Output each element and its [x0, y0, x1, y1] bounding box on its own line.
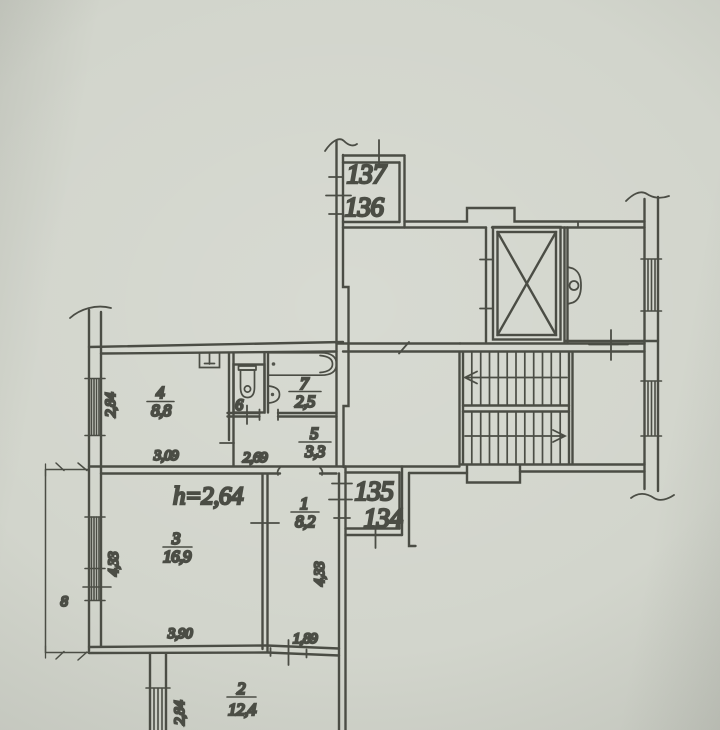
svg-text:3: 3: [171, 529, 180, 548]
svg-text:137: 137: [347, 159, 388, 189]
svg-text:136: 136: [345, 192, 385, 222]
svg-text:6: 6: [235, 397, 243, 414]
svg-text:2,5: 2,5: [295, 392, 315, 411]
svg-text:7: 7: [300, 374, 310, 393]
svg-text:4: 4: [156, 383, 165, 402]
svg-text:3,90: 3,90: [167, 626, 193, 642]
svg-text:3,09: 3,09: [153, 448, 179, 464]
svg-text:8: 8: [61, 594, 69, 610]
svg-text:h=2,64: h=2,64: [173, 483, 243, 510]
svg-text:2: 2: [237, 679, 246, 698]
svg-text:3,3: 3,3: [304, 442, 325, 461]
svg-text:16,9: 16,9: [163, 547, 192, 566]
svg-text:2,84: 2,84: [103, 392, 119, 417]
svg-text:5: 5: [310, 424, 318, 443]
svg-text:2,69: 2,69: [243, 450, 268, 466]
svg-text:2,84: 2,84: [172, 700, 188, 725]
svg-text:4,33: 4,33: [106, 552, 122, 576]
svg-text:1: 1: [300, 494, 308, 513]
svg-text:8,2: 8,2: [295, 512, 316, 531]
svg-text:135: 135: [355, 476, 394, 506]
svg-text:134: 134: [364, 503, 403, 533]
svg-text:4,33: 4,33: [312, 562, 328, 586]
svg-text:1,89: 1,89: [293, 631, 318, 647]
svg-text:8,8: 8,8: [151, 401, 172, 420]
svg-text:12,4: 12,4: [228, 700, 257, 719]
